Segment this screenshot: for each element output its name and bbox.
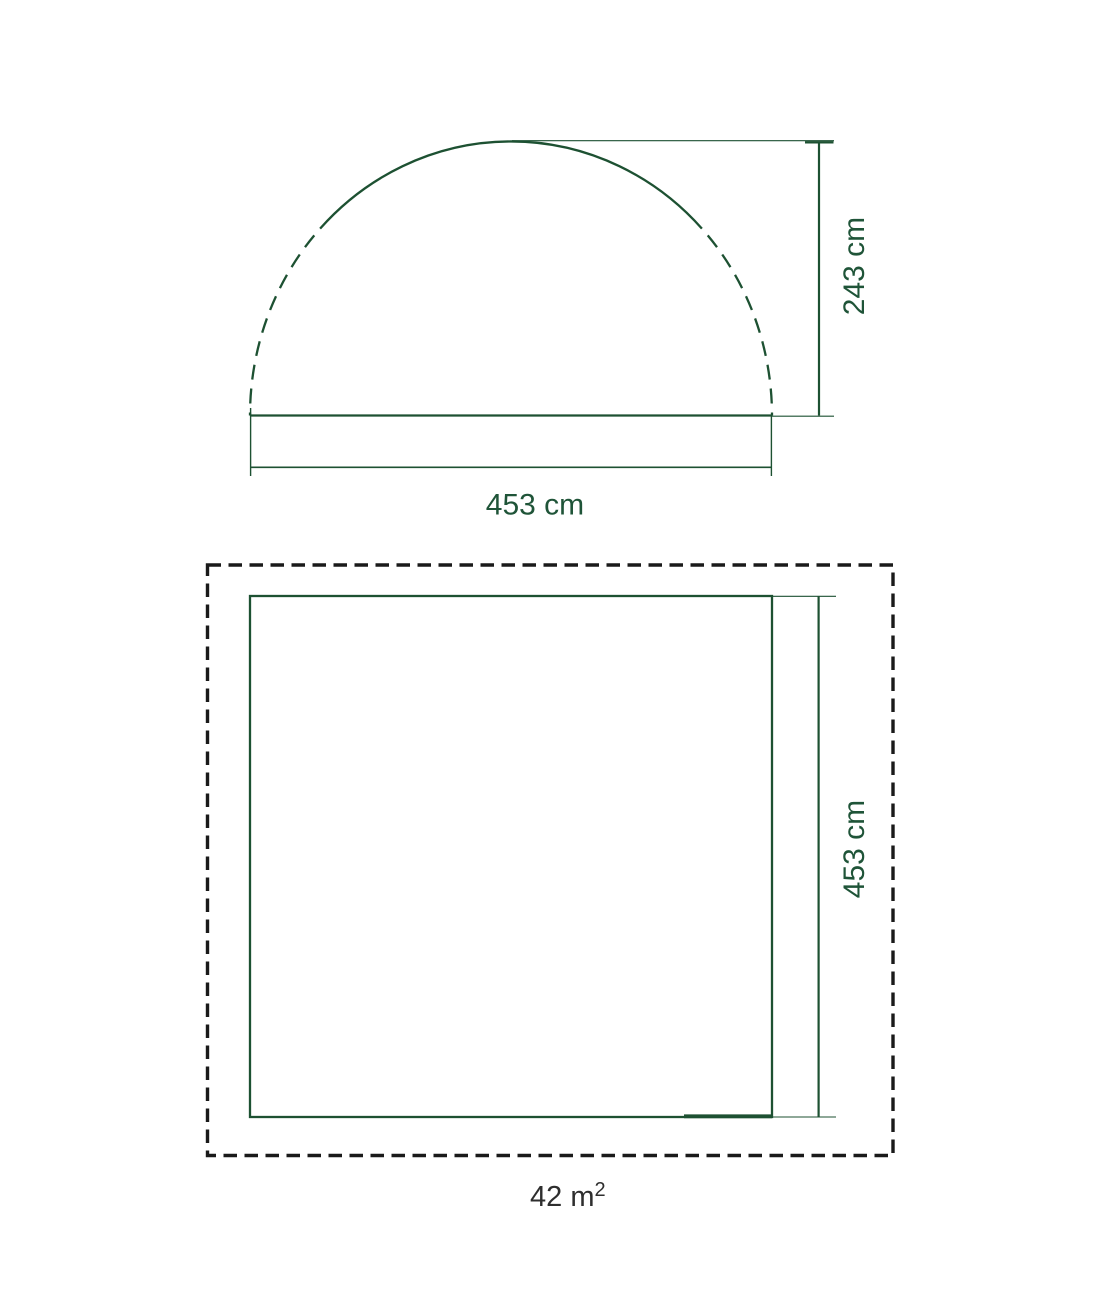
svg-text:243 cm: 243 cm <box>838 217 871 315</box>
svg-text:453 cm: 453 cm <box>838 800 871 898</box>
svg-text:42 m2: 42 m2 <box>530 1179 606 1213</box>
svg-text:453 cm: 453 cm <box>486 489 584 522</box>
